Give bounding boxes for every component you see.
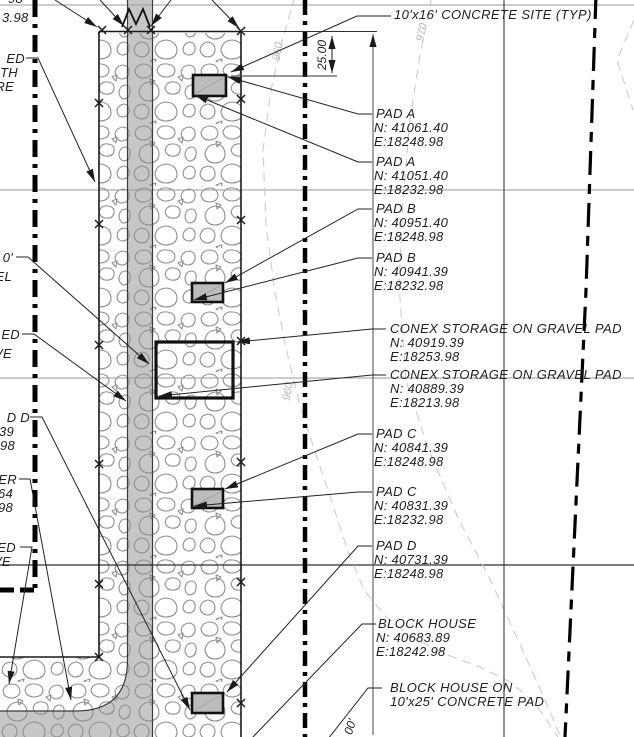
callout-easting: E:18253.98 bbox=[390, 349, 460, 364]
site-plan-drawing: 960 970 960 bbox=[0, 0, 634, 737]
site-plan-sheet: 960 970 960 bbox=[0, 0, 634, 737]
callout-northing: N: 41051.40 bbox=[374, 168, 449, 183]
dim-value: 25.00 bbox=[315, 40, 329, 71]
partial-g4-1: D D bbox=[7, 410, 30, 425]
partial-g5-3: 98 bbox=[0, 500, 13, 515]
callout-northing: N: 40889.39 bbox=[390, 381, 464, 396]
partial-g6-2: VE bbox=[0, 554, 11, 569]
callout-northing: N: 40941.39 bbox=[374, 264, 448, 279]
partial-g4-3: 98 bbox=[0, 438, 15, 453]
partial-g4-2: 39 bbox=[0, 424, 14, 439]
callout-easting: E:18213.98 bbox=[390, 395, 460, 410]
callout-easting: E:18232.98 bbox=[374, 278, 444, 293]
callout-easting: E:18248.98 bbox=[374, 134, 444, 149]
callout-northing: N: 41061.40 bbox=[374, 120, 449, 135]
note-line-2: 10'x25' CONCRETE PAD bbox=[390, 694, 544, 709]
partial-g5-2: 64 bbox=[0, 486, 13, 501]
partial-coord-top-1: 98 bbox=[8, 0, 24, 6]
callout-title: BLOCK HOUSE bbox=[378, 616, 476, 631]
callout-title: PAD D bbox=[376, 538, 417, 553]
callout-easting: E:18248.98 bbox=[374, 229, 444, 244]
callout-easting: E:18248.98 bbox=[374, 454, 444, 469]
callout-easting: E:18232.98 bbox=[374, 512, 444, 527]
partial-g2-2: EL bbox=[0, 269, 12, 284]
callout-northing: N: 40951.40 bbox=[374, 215, 449, 230]
callout-northing: N: 40841.39 bbox=[374, 440, 448, 455]
partial-g1-1: ED bbox=[6, 51, 25, 66]
partial-g3-2: VE bbox=[0, 346, 12, 361]
callout-easting: E:18242.98 bbox=[376, 644, 446, 659]
gravel-corner-area bbox=[0, 657, 99, 737]
callout-title: PAD B bbox=[376, 250, 416, 265]
callout-title: PAD C bbox=[376, 426, 417, 441]
callout-easting: E:18248.98 bbox=[374, 566, 444, 581]
note-line-1: BLOCK HOUSE ON bbox=[390, 680, 513, 695]
callout-northing: N: 40683.89 bbox=[376, 630, 450, 645]
partial-g3-1: ED bbox=[1, 327, 20, 342]
callout-easting: E:18232.98 bbox=[374, 182, 444, 197]
partial-g2-1: 0' bbox=[3, 250, 14, 265]
callout-title: PAD C bbox=[376, 484, 417, 499]
callout-northing: N: 40731.39 bbox=[374, 552, 448, 567]
partial-g5-1: ER bbox=[0, 472, 17, 487]
partial-g6-1: ED bbox=[0, 540, 16, 555]
callout-title: PAD A bbox=[376, 106, 416, 121]
gravel-strip bbox=[99, 33, 241, 737]
partial-g1-2: TH bbox=[0, 65, 18, 80]
callout-title: PAD B bbox=[376, 201, 416, 216]
callout-title: CONEX STORAGE ON GRAVEL PAD bbox=[390, 321, 622, 336]
callout-title: PAD A bbox=[376, 154, 416, 169]
partial-coord-top-2: 3.98 bbox=[2, 10, 29, 25]
callout-northing: N: 40831.39 bbox=[374, 498, 448, 513]
callout-title: CONEX STORAGE ON GRAVEL PAD bbox=[390, 367, 622, 382]
top-note-label: 10'x16' CONCRETE SITE (TYP) bbox=[394, 7, 592, 22]
callout-northing: N: 40919.39 bbox=[390, 335, 464, 350]
partial-g1-3: RE bbox=[0, 79, 14, 94]
